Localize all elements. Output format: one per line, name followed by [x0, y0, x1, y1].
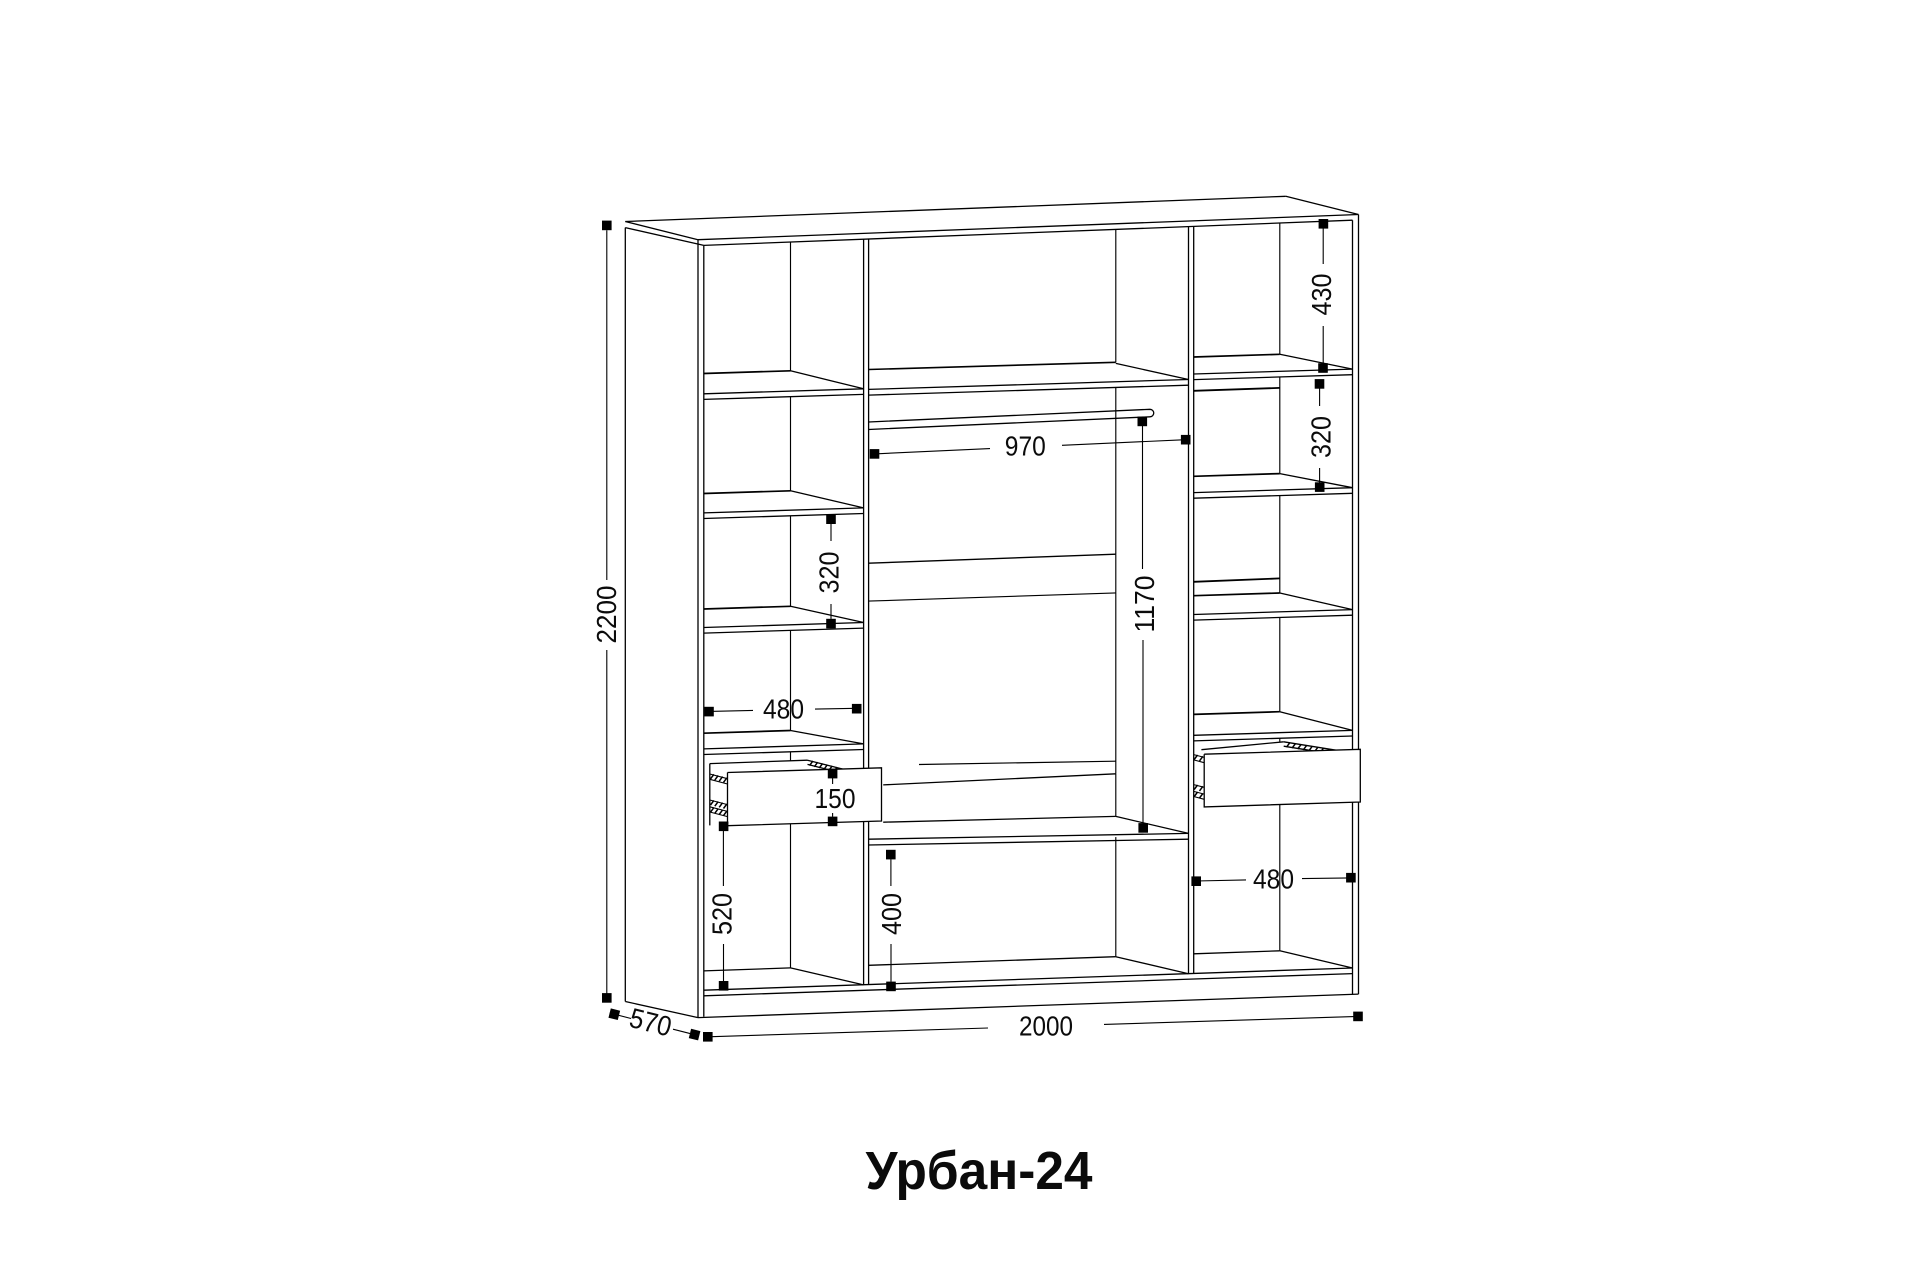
- svg-text:2200: 2200: [591, 586, 622, 644]
- svg-text:480: 480: [763, 693, 804, 724]
- svg-text:430: 430: [1306, 274, 1337, 316]
- svg-text:2000: 2000: [1019, 1011, 1073, 1042]
- svg-text:320: 320: [1306, 416, 1337, 458]
- svg-text:970: 970: [1005, 431, 1046, 462]
- svg-text:400: 400: [876, 893, 907, 935]
- svg-text:480: 480: [1253, 864, 1294, 895]
- svg-text:320: 320: [813, 552, 844, 594]
- svg-text:150: 150: [815, 783, 856, 814]
- svg-text:520: 520: [707, 893, 738, 935]
- svg-text:1170: 1170: [1129, 576, 1160, 633]
- svg-text:Урбан-24: Урбан-24: [866, 1141, 1093, 1201]
